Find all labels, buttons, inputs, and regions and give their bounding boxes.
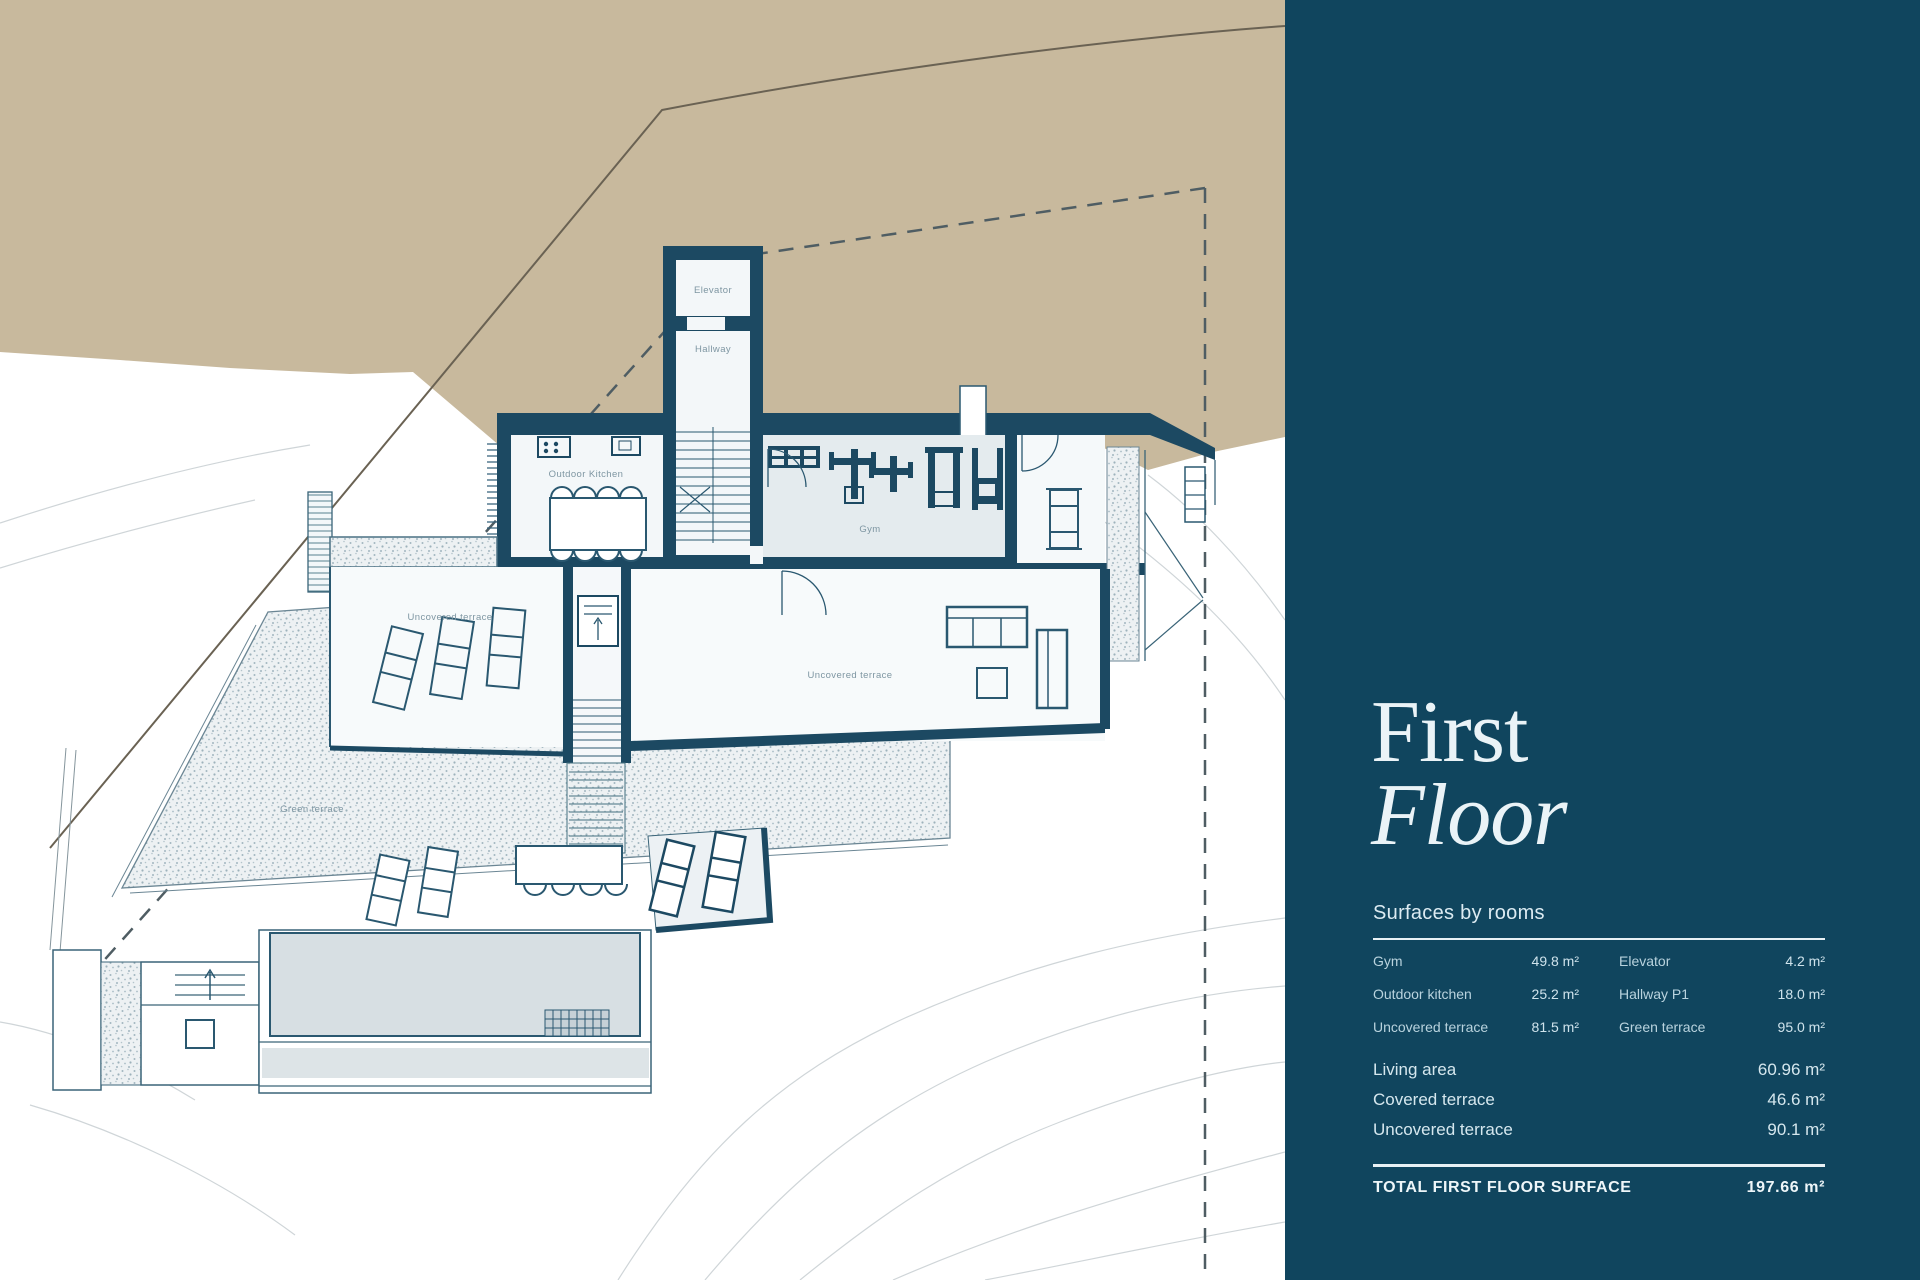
- floorplan-svg: Elevator Hallway Outdoor Kitch: [0, 0, 1285, 1280]
- gym-room: Gym: [763, 435, 1005, 569]
- room-value: 4.2 m²: [1785, 953, 1825, 969]
- surfaces-header: Surfaces by rooms: [1373, 902, 1825, 940]
- room-value: 95.0 m²: [1778, 1019, 1825, 1035]
- title-line-floor: Floor: [1371, 775, 1566, 858]
- total-surface-row: TOTAL FIRST FLOOR SURFACE 197.66 m²: [1373, 1164, 1825, 1197]
- pool: [259, 930, 651, 1093]
- page-title: First Floor: [1371, 692, 1566, 857]
- surface-summary: Living area 60.96 m² Covered terrace 46.…: [1373, 1060, 1825, 1150]
- planter-stipple-strip: [101, 962, 141, 1085]
- room-row-outdoor-kitchen: Outdoor kitchen 25.2 m²: [1373, 986, 1579, 1002]
- room-row-green-terrace: Green terrace 95.0 m²: [1619, 1019, 1825, 1035]
- total-label: TOTAL FIRST FLOOR SURFACE: [1373, 1179, 1632, 1197]
- room-table-col-left: Gym 49.8 m² Outdoor kitchen 25.2 m² Unco…: [1373, 953, 1579, 1052]
- shaft-box-icon: [186, 1020, 214, 1048]
- green-terrace-label: Green terrace: [280, 804, 344, 815]
- skylight-box: [960, 386, 986, 440]
- gym-label: Gym: [859, 524, 880, 535]
- uncovered-terrace-right-label: Uncovered terrace: [808, 670, 893, 681]
- terrain-hillside: [0, 0, 1285, 470]
- room-label: Outdoor kitchen: [1373, 986, 1472, 1002]
- room-label: Uncovered terrace: [1373, 1019, 1488, 1035]
- room-value: 18.0 m²: [1778, 986, 1825, 1002]
- floorplan-drawing: Elevator Hallway Outdoor Kitch: [0, 0, 1285, 1280]
- info-sidebar: First Floor Surfaces by rooms Gym 49.8 m…: [1285, 0, 1920, 1280]
- room-label: Hallway P1: [1619, 986, 1689, 1002]
- summary-label: Uncovered terrace: [1373, 1120, 1513, 1140]
- lounger-platform: [648, 828, 770, 930]
- outdoor-steps: [567, 763, 625, 853]
- title-line-first: First: [1371, 692, 1566, 775]
- sink-icon: [612, 437, 640, 455]
- pool-house-room: [141, 962, 259, 1085]
- elevator-label: Elevator: [694, 285, 732, 296]
- uncovered-terrace-left-label: Uncovered terrace: [408, 612, 493, 623]
- room-row-elevator: Elevator 4.2 m²: [1619, 953, 1825, 969]
- outdoor-kitchen-label: Outdoor Kitchen: [549, 469, 624, 480]
- pool-structure: [53, 930, 651, 1093]
- dining-table-icon: [550, 487, 646, 561]
- summary-value: 60.96 m²: [1758, 1060, 1825, 1080]
- room-value: 25.2 m²: [1532, 986, 1579, 1002]
- room-label: Elevator: [1619, 953, 1670, 969]
- outdoor-kitchen-room: Outdoor Kitchen: [487, 413, 663, 569]
- summary-label: Covered terrace: [1373, 1090, 1495, 1110]
- floorplan-page: Elevator Hallway Outdoor Kitch: [0, 0, 1920, 1280]
- summary-row-uncovered-terrace: Uncovered terrace 90.1 m²: [1373, 1120, 1825, 1140]
- uncovered-terrace-right: Uncovered terrace: [631, 569, 1110, 751]
- summary-label: Living area: [1373, 1060, 1456, 1080]
- summary-row-living-area: Living area 60.96 m²: [1373, 1060, 1825, 1080]
- hallway-label: Hallway: [695, 344, 731, 355]
- room-surface-table: Gym 49.8 m² Outdoor kitchen 25.2 m² Unco…: [1373, 953, 1825, 1052]
- tower: Elevator Hallway: [663, 246, 763, 570]
- room-row-hallway: Hallway P1 18.0 m²: [1619, 986, 1825, 1002]
- total-value: 197.66 m²: [1747, 1179, 1825, 1197]
- planter-strip: [330, 537, 497, 567]
- room-value: 49.8 m²: [1532, 953, 1579, 969]
- room-row-gym: Gym 49.8 m²: [1373, 953, 1579, 969]
- room-row-uncovered-terrace: Uncovered terrace 81.5 m²: [1373, 1019, 1579, 1035]
- room-table-col-right: Elevator 4.2 m² Hallway P1 18.0 m² Green…: [1619, 953, 1825, 1052]
- stove-icon: [538, 437, 570, 457]
- room-label: Gym: [1373, 953, 1403, 969]
- summary-value: 90.1 m²: [1767, 1120, 1825, 1140]
- right-planter-band: [1107, 447, 1205, 661]
- room-value: 81.5 m²: [1532, 1019, 1579, 1035]
- central-stair-shaft: [563, 567, 631, 853]
- summary-value: 46.6 m²: [1767, 1090, 1825, 1110]
- wall-top: [497, 413, 1150, 435]
- summary-row-covered-terrace: Covered terrace 46.6 m²: [1373, 1090, 1825, 1110]
- plot-edge-lines: [50, 748, 76, 952]
- room-label: Green terrace: [1619, 1019, 1705, 1035]
